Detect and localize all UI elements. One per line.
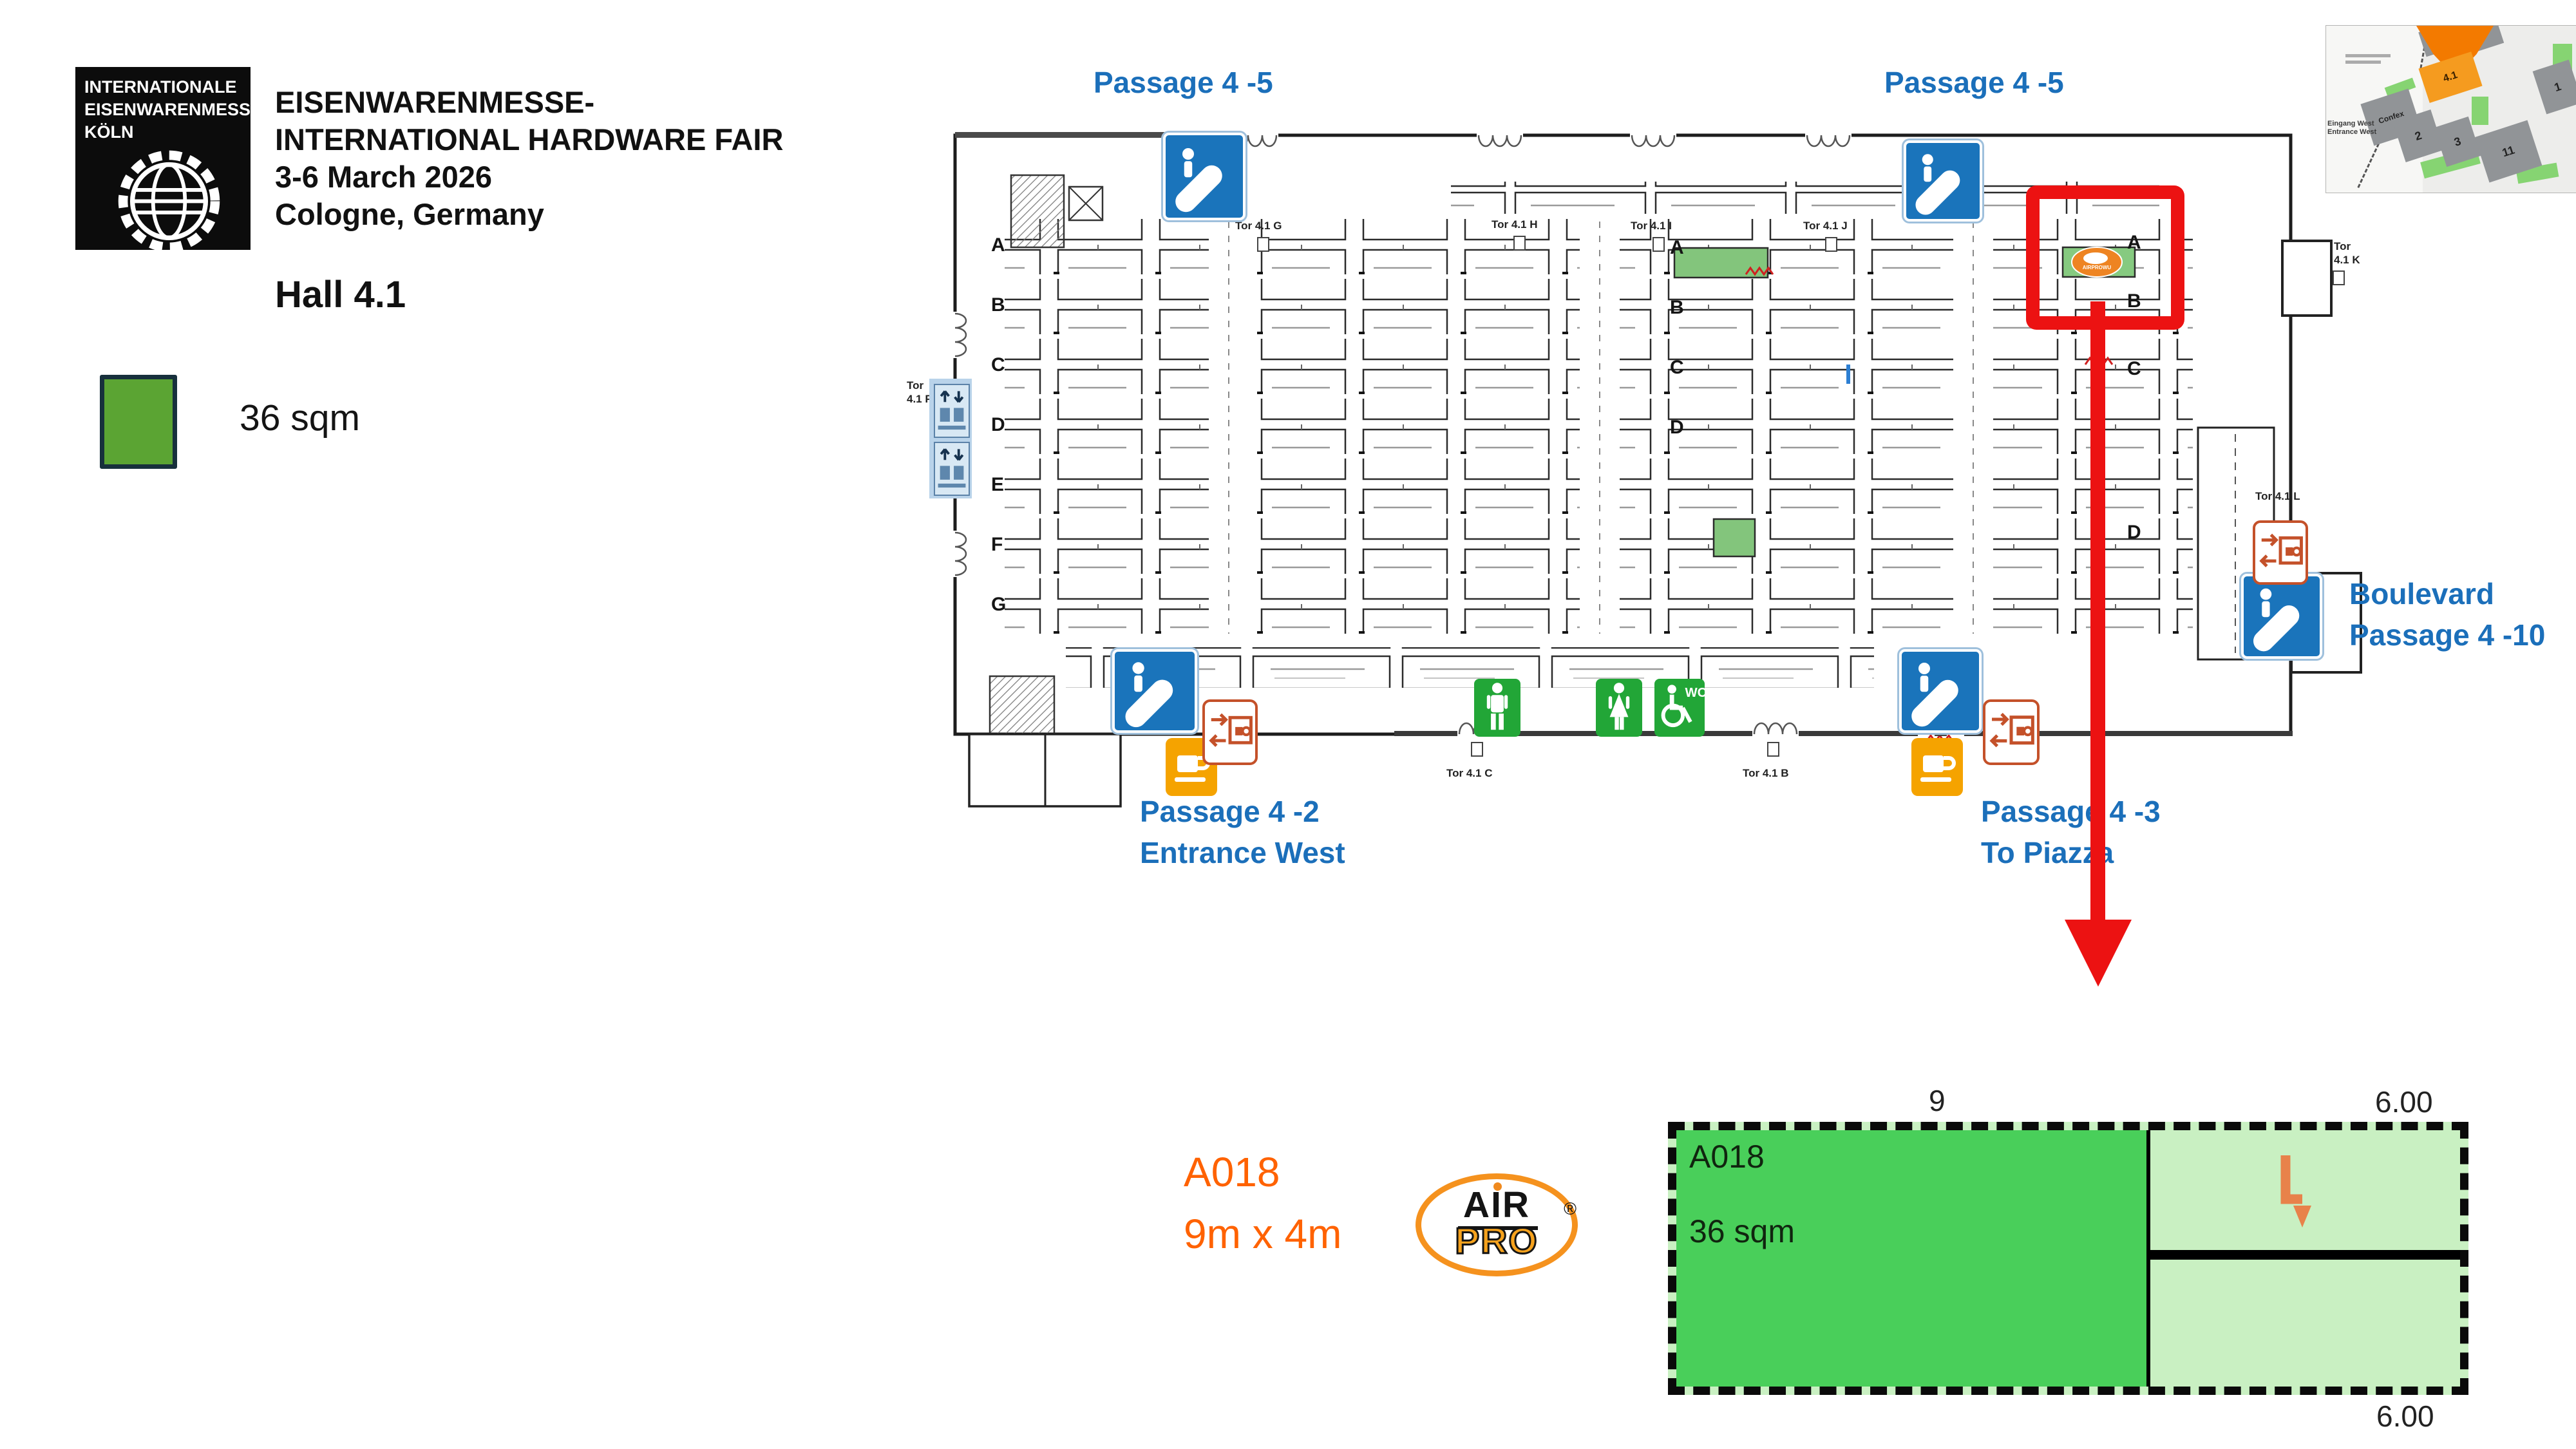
booth-code: A018 xyxy=(1689,1138,1765,1175)
fair-logo: INTERNATIONALE EISENWARENMESSE KÖLN xyxy=(75,67,251,250)
passage-label: Passage 4 -5 xyxy=(1884,62,2064,103)
minimap-smalltext-bar xyxy=(2345,61,2381,64)
tor-label: Tor4.1 F xyxy=(907,379,932,406)
svg-text:D: D xyxy=(1670,417,1684,438)
passage-label: Passage 4 -2 Entrance West xyxy=(1140,791,1345,873)
wc-men-icon xyxy=(1474,679,1520,737)
charging-station-icon xyxy=(2253,520,2308,585)
airpro-logo-dot xyxy=(1493,1182,1502,1191)
gate-marker xyxy=(1825,237,1837,252)
booth-area: 36 sqm xyxy=(1689,1213,1795,1250)
escalator-icon xyxy=(1163,133,1245,220)
highlight-rectangle xyxy=(2026,185,2184,330)
tor-label: Tor 4.1 C xyxy=(1446,766,1492,780)
svg-text:A: A xyxy=(991,234,1005,256)
airpro-logo-pro: PRO xyxy=(1416,1220,1578,1262)
charging-station-icon xyxy=(1202,699,1258,765)
gate-marker xyxy=(1257,237,1269,252)
gate-marker xyxy=(1653,237,1665,252)
minimap-entrance-label: Eingang West Entrance West xyxy=(2327,120,2376,137)
svg-text:WC: WC xyxy=(1685,686,1705,700)
escalator-icon xyxy=(1899,649,1982,733)
registered-mark: ® xyxy=(1564,1199,1577,1219)
booth-divider-horizontal xyxy=(2150,1250,2460,1260)
charging-station-icon xyxy=(1983,699,2040,765)
tor-label: Tor 4.1 L xyxy=(2255,489,2300,503)
highlight-arrow-shaft xyxy=(2090,301,2105,920)
wc-women-icon xyxy=(1596,679,1642,737)
elevator-icon xyxy=(934,384,970,438)
stairs-block xyxy=(1011,175,1064,247)
escalator-icon xyxy=(2241,574,2322,659)
booth-a018-area: A018 36 sqm xyxy=(1676,1130,2146,1387)
tor-label: Tor 4.1 I xyxy=(1631,219,1672,232)
gear-globe-icon xyxy=(113,143,225,256)
detail-dim-width: 9 xyxy=(1929,1083,1946,1118)
passage-label: Passage 4 -5 xyxy=(1094,62,1273,103)
fair-title-line: EISENWARENMESSE- xyxy=(275,84,919,121)
detail-dim-right-top: 6.00 xyxy=(2375,1084,2433,1119)
gate-marker xyxy=(1767,742,1779,757)
wc-accessible-icon: WC xyxy=(1654,679,1705,737)
green-booth xyxy=(1714,519,1755,556)
svg-text:A: A xyxy=(1670,237,1684,258)
tor-label: Tor 4.1 H xyxy=(1492,218,1537,231)
svg-text:B: B xyxy=(1670,297,1684,318)
passage-label: Boulevard Passage 4 -10 xyxy=(2349,573,2545,656)
svg-text:F: F xyxy=(991,534,1003,555)
svg-text:D: D xyxy=(2127,522,2141,543)
svg-text:C: C xyxy=(1670,357,1684,378)
logo-text-line: INTERNATIONALE xyxy=(75,67,251,99)
fair-date-line: 3-6 March 2026 xyxy=(275,158,919,196)
tor-label: Tor 4.1 B xyxy=(1743,766,1788,780)
svg-text:E: E xyxy=(991,474,1004,495)
hall-title: Hall 4.1 xyxy=(275,273,406,316)
minimap-smalltext-bar xyxy=(2345,54,2391,57)
booth-callout-code: A018 xyxy=(1184,1141,1341,1203)
page: { "header": { "logo_lines": ["INTERNATIO… xyxy=(0,0,2576,1449)
gate-marker xyxy=(1471,742,1483,757)
minimap-hall-1: 1 xyxy=(2533,60,2576,115)
booth-detail-drawing: A018 36 sqm xyxy=(1668,1122,2468,1395)
gate-marker xyxy=(2333,270,2345,285)
svg-text:B: B xyxy=(991,294,1005,316)
fair-city-line: Cologne, Germany xyxy=(275,196,919,233)
detail-dim-right-bottom: 6.00 xyxy=(2376,1399,2434,1434)
booth-callout: A018 9m x 4m xyxy=(1184,1141,1341,1265)
coffee-icon xyxy=(1911,738,1963,796)
tor-label: Tor 4.1 J xyxy=(1803,219,1848,232)
minimap-hall-41: 4.1 xyxy=(2418,52,2482,103)
booth-callout-dims: 9m x 4m xyxy=(1184,1203,1341,1265)
passage-label: Passage 4 -3 To Piazza xyxy=(1981,791,2161,873)
svg-text:G: G xyxy=(991,594,1006,615)
tor-k-vestibule xyxy=(2281,240,2333,317)
logo-text-line: KÖLN xyxy=(75,121,251,144)
airpro-logo: AIR PRO ® xyxy=(1416,1173,1578,1276)
site-overview-map: Confex 2 3 11 1 4.1 Eingang West Entranc… xyxy=(2325,25,2576,193)
highlight-arrow-head xyxy=(2065,920,2132,987)
power-drop-icon xyxy=(2269,1148,2320,1238)
elevator-icon xyxy=(934,442,970,496)
svg-text:C: C xyxy=(2127,358,2141,379)
elevator-panel xyxy=(929,379,972,498)
svg-text:C: C xyxy=(991,354,1005,375)
gate-marker xyxy=(1513,236,1526,251)
tor-label: Tor4.1 K xyxy=(2334,240,2360,267)
svg-text:D: D xyxy=(991,414,1005,435)
legend-label: 36 sqm xyxy=(240,397,360,439)
tor-label: Tor 4.1 G xyxy=(1235,219,1282,232)
escalator-icon xyxy=(1904,140,1982,222)
legend-color-swatch xyxy=(100,375,177,469)
fair-title-line: INTERNATIONAL HARDWARE FAIR xyxy=(275,121,919,158)
logo-text-line: EISENWARENMESSE xyxy=(75,99,251,121)
escalator-icon xyxy=(1112,649,1197,733)
